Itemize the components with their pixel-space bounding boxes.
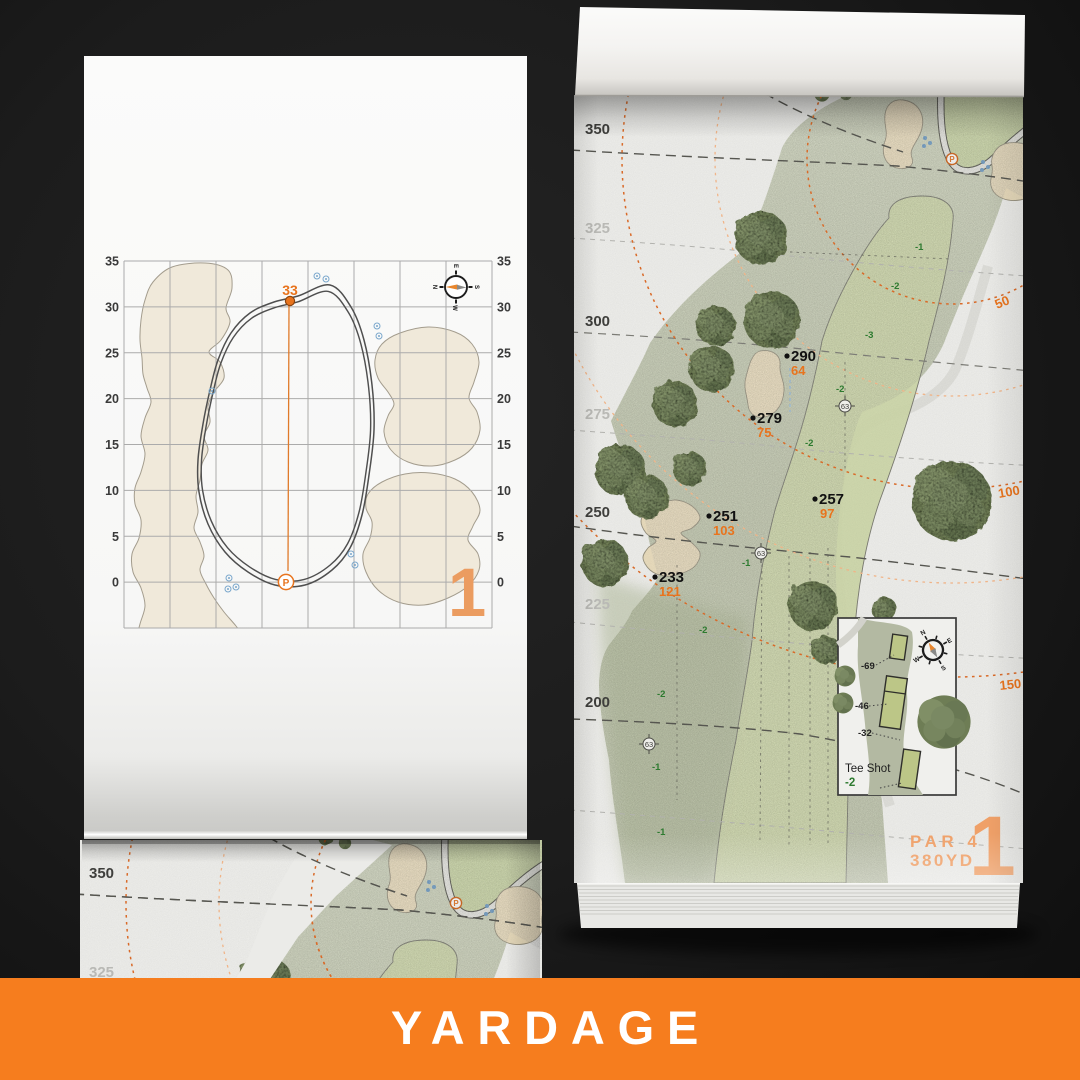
svg-text:35: 35: [105, 255, 119, 269]
svg-text:25: 25: [105, 346, 119, 360]
svg-text:P: P: [283, 578, 290, 589]
svg-text:15: 15: [497, 438, 511, 452]
svg-text:S: S: [473, 285, 479, 289]
svg-text:30: 30: [497, 300, 511, 314]
svg-text:5: 5: [497, 530, 504, 544]
svg-text:35: 35: [497, 255, 511, 269]
svg-text:E: E: [452, 264, 458, 268]
svg-text:10: 10: [105, 484, 119, 498]
svg-text:20: 20: [497, 392, 511, 406]
svg-text:0: 0: [112, 576, 119, 590]
svg-text:25: 25: [497, 346, 511, 360]
svg-text:30: 30: [105, 300, 119, 314]
svg-text:N: N: [431, 285, 437, 289]
svg-text:YARDAGE: YARDAGE: [391, 1001, 711, 1054]
svg-text:W: W: [451, 305, 457, 311]
svg-text:20: 20: [105, 392, 119, 406]
svg-text:15: 15: [105, 438, 119, 452]
svg-text:5: 5: [112, 530, 119, 544]
svg-text:33: 33: [282, 282, 298, 298]
svg-text:10: 10: [497, 484, 511, 498]
svg-text:1: 1: [448, 554, 486, 631]
svg-text:0: 0: [497, 576, 504, 590]
